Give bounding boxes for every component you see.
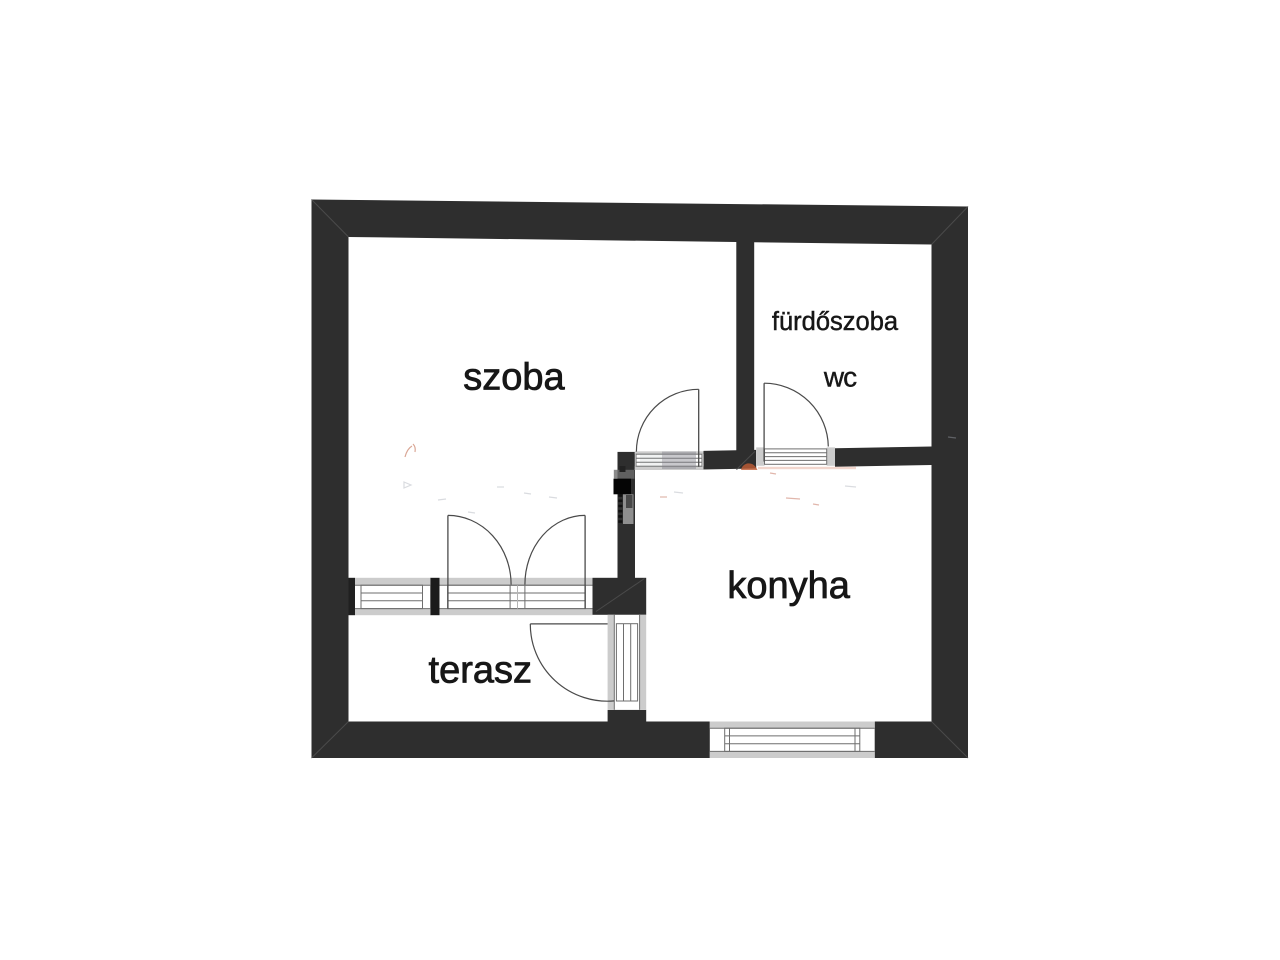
svg-text:fürdőszoba: fürdőszoba — [772, 308, 899, 336]
svg-text:terasz: terasz — [429, 650, 532, 692]
svg-text:szoba: szoba — [463, 356, 565, 398]
svg-text:wc: wc — [823, 362, 857, 393]
svg-text:konyha: konyha — [727, 565, 850, 607]
